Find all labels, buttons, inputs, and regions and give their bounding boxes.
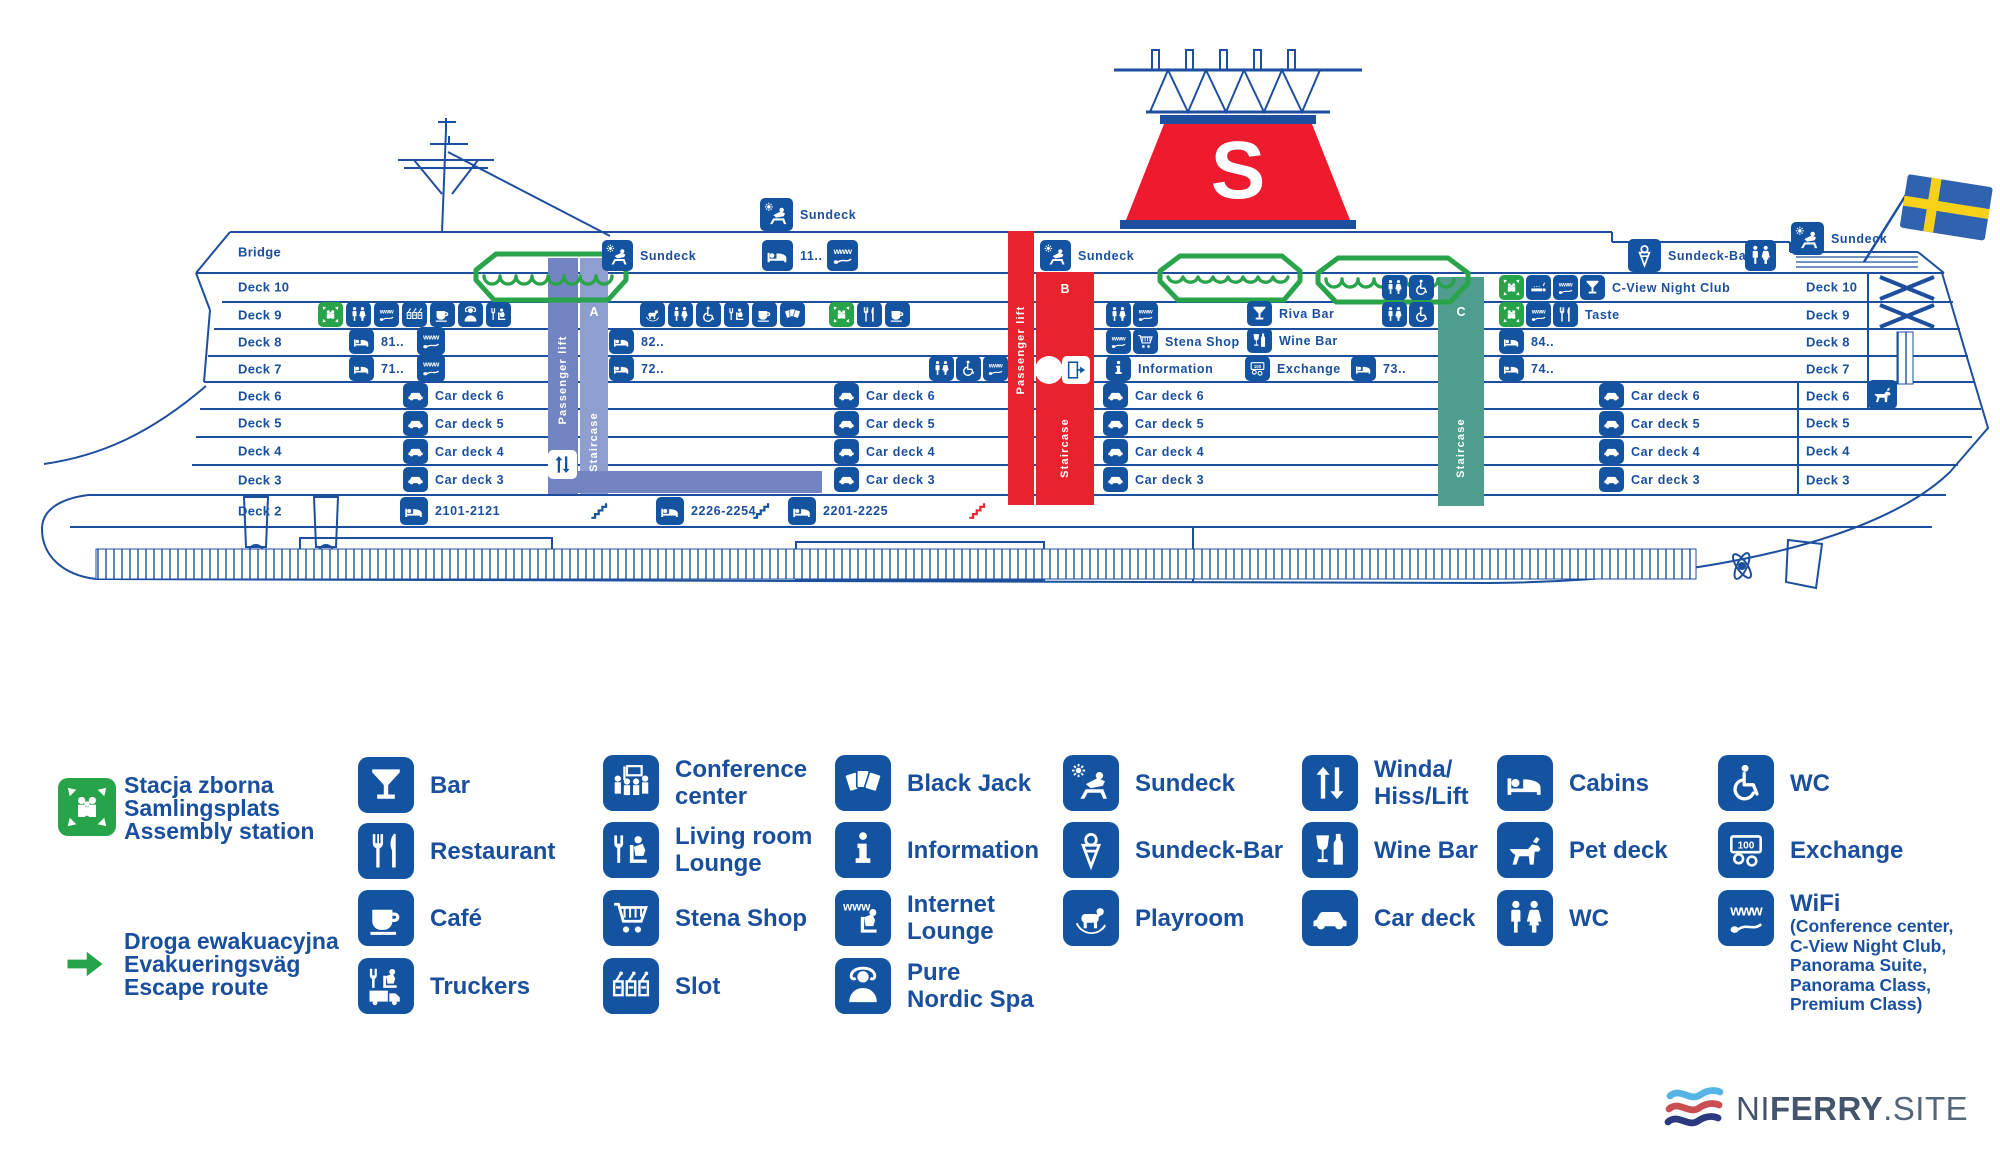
spa-icon [458, 302, 483, 327]
wc-acc-icon [956, 356, 981, 381]
slot-icon [402, 302, 427, 327]
cabins-icon [762, 240, 793, 271]
assembly-station-icon [58, 778, 116, 836]
playroom-icon [640, 302, 665, 327]
marker-label: Car deck 3 [1631, 473, 1700, 487]
legend-item-lift: Winda/Hiss/Lift [1302, 755, 1469, 811]
www-icon [1133, 302, 1158, 327]
legend-item-cabins: Cabins [1497, 755, 1649, 811]
legend-item-pet: Pet deck [1497, 822, 1668, 878]
pet-icon [1497, 822, 1553, 878]
marker-smoking [1526, 275, 1551, 300]
stairs-icon [586, 496, 614, 524]
bridge-front [196, 232, 230, 382]
marker-www [417, 327, 445, 355]
marker-label: Car deck 6 [1135, 389, 1204, 403]
funnel: S [1120, 115, 1356, 229]
legend-item-shop: Stena Shop [603, 890, 807, 946]
legend-label: WiFi(Conference center,C-View Night Club… [1790, 890, 1953, 1015]
funnel-letter: S [1211, 125, 1266, 216]
escape-route-label: Droga ewakuacyjnaEvakueringsvägEscape ro… [124, 930, 339, 999]
legend-item-restaurant: Restaurant [358, 823, 555, 879]
funnel-mast [1114, 50, 1362, 112]
marker-car: Car deck 6 [403, 383, 504, 408]
marker-cabins: 71.. [349, 356, 404, 381]
sundeck-icon [1063, 755, 1119, 811]
deck-label-right: Deck 6 [1806, 389, 1850, 404]
marker-sundeck: Sundeck [760, 198, 856, 231]
legend-item-slot: Slot [603, 958, 720, 1014]
deck-label-left: Deck 7 [238, 362, 282, 377]
marker-label: Sundeck-Bar [1668, 249, 1752, 263]
marker-www [983, 356, 1008, 381]
cafe-icon [358, 890, 414, 946]
band-staircase-b-letter: B [1060, 282, 1069, 296]
marker-wc [1745, 240, 1776, 271]
legend-label: Information [907, 837, 1039, 864]
marker-wc-acc [956, 356, 981, 381]
marker-cabins: 81.. [349, 329, 404, 354]
info-icon [835, 822, 891, 878]
legend-label: Café [430, 905, 482, 932]
niferry-site-logo: NIFERRY.SITE [1664, 1084, 1968, 1134]
legend-item-playroom: Playroom [1063, 890, 1244, 946]
legend-label: Black Jack [907, 770, 1031, 797]
exchange-icon [1245, 356, 1270, 381]
legend-label: Wine Bar [1374, 837, 1478, 864]
marker-cabins: 2201-2225 [788, 497, 888, 525]
wifi-icon [1718, 890, 1774, 946]
marker-www [1526, 302, 1551, 327]
legend-label: WC [1790, 770, 1830, 797]
legend-label: Winda/Hiss/Lift [1374, 756, 1469, 810]
marker-assembly [1499, 302, 1524, 327]
legend-label: Sundeck [1135, 770, 1235, 797]
restaurant-icon [857, 302, 882, 327]
wc-icon [929, 356, 954, 381]
marker-label: Wine Bar [1279, 334, 1338, 348]
wc-icon [346, 302, 371, 327]
deck-label-right: Deck 3 [1806, 473, 1850, 488]
marker-label: Car deck 3 [866, 473, 935, 487]
legend-item-wc-acc: WC [1718, 755, 1830, 811]
radar-mast [398, 118, 610, 236]
car-icon [1599, 439, 1624, 464]
wc-acc-icon [1718, 755, 1774, 811]
ferry-deck-plan: www 100 www ww [0, 0, 2000, 1154]
marker-label: Sundeck [1078, 249, 1134, 263]
lounge-icon [486, 302, 511, 327]
band-staircase-c-text: Staircase [1455, 418, 1467, 478]
deck-label-right: Deck 7 [1806, 362, 1850, 377]
legend-item-blackjack: Black Jack [835, 755, 1031, 811]
cabins-icon [349, 356, 374, 381]
marker-label: 84.. [1531, 335, 1554, 349]
legend-label: Exchange [1790, 837, 1903, 864]
www-icon [1526, 302, 1551, 327]
marker-wc [1382, 275, 1407, 300]
assembly-station-icon [58, 778, 116, 836]
legend-item-spa: PureNordic Spa [835, 958, 1034, 1014]
band-staircase-b-lift-text: Passenger lift [1015, 306, 1027, 395]
pet-icon [1868, 380, 1897, 409]
car-icon [403, 467, 428, 492]
deck-label-right: Deck 8 [1806, 335, 1850, 350]
assembly-icon [318, 302, 343, 327]
marker-label: 2226-2254 [691, 504, 756, 518]
car-icon [403, 439, 428, 464]
www-icon [983, 356, 1008, 381]
car-icon [834, 411, 859, 436]
www-icon [417, 354, 445, 382]
conference-icon [603, 755, 659, 811]
legend-label: InternetLounge [907, 891, 995, 945]
marker-info: Information [1106, 356, 1213, 381]
marker-label: 71.. [381, 362, 404, 376]
car-icon [1599, 467, 1624, 492]
legend-item-sundeck: Sundeck [1063, 755, 1235, 811]
sundeck-icon [1040, 240, 1071, 271]
legend-label: Living roomLounge [675, 823, 812, 877]
deck-label-left: Deck 3 [238, 473, 282, 488]
marker-stairs [586, 496, 614, 524]
wc-icon [1382, 275, 1407, 300]
lift-icon [1302, 755, 1358, 811]
band-staircase-a-lift-text: Passenger lift [557, 336, 569, 425]
legend-item-cafe: Café [358, 890, 482, 946]
marker-label: Car deck 5 [1135, 417, 1204, 431]
dot-icon [1035, 356, 1063, 384]
marker-wc-acc [1409, 302, 1434, 327]
legend-label: Cabins [1569, 770, 1649, 797]
marker-car: Car deck 3 [403, 467, 504, 492]
marker-wc [1382, 302, 1407, 327]
bar-icon [358, 757, 414, 813]
marker-car: Car deck 4 [1103, 439, 1204, 464]
marker-bar: Riva Bar [1247, 301, 1335, 326]
legend-label: Slot [675, 973, 720, 1000]
band-staircase-c-letter: C [1456, 305, 1465, 319]
shop-icon [1133, 329, 1158, 354]
marker-cabins: 72.. [609, 356, 664, 381]
cabins-icon [609, 356, 634, 381]
marker-car: Car deck 6 [1103, 383, 1204, 408]
marker-wc-acc [696, 302, 721, 327]
car-icon [1599, 383, 1624, 408]
marker-stairs [964, 496, 992, 524]
sundeck-icon [760, 198, 793, 231]
marker-label: Car deck 5 [435, 417, 504, 431]
www-icon [374, 302, 399, 327]
marker-cabins: 11.. [762, 240, 823, 271]
car-icon [403, 411, 428, 436]
wc-icon [1106, 302, 1131, 327]
marker-label: Exchange [1277, 362, 1341, 376]
wc-acc-icon [696, 302, 721, 327]
marker-wc [346, 302, 371, 327]
marker-label: 72.. [641, 362, 664, 376]
marker-wine: Wine Bar [1247, 328, 1338, 353]
marker-blackjack [780, 302, 805, 327]
bow-rib-strip [1897, 332, 1913, 384]
deck-label-left: Bridge [238, 245, 281, 260]
playroom-icon [1063, 890, 1119, 946]
marker-cafe [752, 302, 777, 327]
marker-dot [1035, 356, 1063, 384]
marker-label: Car deck 6 [1631, 389, 1700, 403]
marker-sundeck: Sundeck [1040, 240, 1134, 271]
cabins-icon [1499, 356, 1524, 381]
car-icon [1599, 411, 1624, 436]
sundeck-icon [1791, 222, 1824, 255]
marker-cabins: 84.. [1499, 329, 1554, 354]
marker-label: Sundeck [800, 208, 856, 222]
bar-icon [1247, 301, 1272, 326]
legend-item-sundeck-bar: Sundeck-Bar [1063, 822, 1283, 878]
marker-restaurant [857, 302, 882, 327]
legend-item-info: Information [835, 822, 1039, 878]
marker-label: 73.. [1383, 362, 1406, 376]
lift-icon [548, 450, 577, 479]
restaurant-icon [358, 823, 414, 879]
legend-label: Bar [430, 772, 470, 799]
car-icon [834, 467, 859, 492]
marker-label: Car deck 5 [1631, 417, 1700, 431]
deck-label-left: Deck 4 [238, 444, 282, 459]
marker-label: 2101-2121 [435, 504, 500, 518]
car-icon [1103, 467, 1128, 492]
blackjack-icon [780, 302, 805, 327]
marker-www [1106, 329, 1131, 354]
legend-label: PureNordic Spa [907, 959, 1034, 1013]
car-icon [1103, 439, 1128, 464]
marker-cabins: 74.. [1499, 356, 1554, 381]
marker-label: Car deck 4 [435, 445, 504, 459]
marker-label: 11.. [800, 249, 823, 263]
legend-label: Restaurant [430, 838, 555, 865]
deck-label-right: Deck 9 [1806, 308, 1850, 323]
legend-label: Stena Shop [675, 905, 807, 932]
www-icon [417, 327, 445, 355]
marker-restaurant: Taste [1553, 302, 1620, 327]
marker-spa [458, 302, 483, 327]
marker-label: Sundeck [640, 249, 696, 263]
smoking-icon [1526, 275, 1551, 300]
marker-bar: C-View Night Club [1580, 275, 1730, 300]
sundeck-bar-icon [1628, 239, 1661, 272]
marker-www [417, 354, 445, 382]
car-icon [1103, 383, 1128, 408]
deck-label-right: Deck 10 [1806, 280, 1857, 295]
cafe-icon [430, 302, 455, 327]
cafe-icon [885, 302, 910, 327]
cafe-icon [752, 302, 777, 327]
wc-icon [1745, 240, 1776, 271]
deck-label-left: Deck 6 [238, 389, 282, 404]
marker-cabins: 82.. [609, 329, 664, 354]
escape-route-arrow-icon [64, 950, 106, 983]
assembly-icon [1499, 302, 1524, 327]
marker-stairs [748, 496, 776, 524]
marker-label: Car deck 4 [1631, 445, 1700, 459]
blackjack-icon [835, 755, 891, 811]
deck-label-right: Deck 5 [1806, 416, 1850, 431]
marker-label: Taste [1585, 308, 1620, 322]
slot-icon [603, 958, 659, 1014]
assembly-station-label: Stacja zbornaSamlingsplatsAssembly stati… [124, 774, 314, 843]
marker-assembly [829, 302, 854, 327]
cabins-icon [1351, 356, 1376, 381]
marker-www [1133, 302, 1158, 327]
marker-wc-acc [1409, 275, 1434, 300]
legend-item-bar: Bar [358, 757, 470, 813]
spa-icon [835, 958, 891, 1014]
door-icon [1062, 356, 1090, 384]
marker-label: Riva Bar [1279, 307, 1335, 321]
cabins-icon [656, 497, 684, 525]
marker-car: Car deck 5 [1103, 411, 1204, 436]
stairs-icon [964, 496, 992, 524]
marker-wc [1106, 302, 1131, 327]
deck-label-left: Deck 10 [238, 280, 289, 295]
cabins-icon [400, 497, 428, 525]
lounge-icon [724, 302, 749, 327]
marker-lounge [486, 302, 511, 327]
marker-cafe [885, 302, 910, 327]
assembly-icon [829, 302, 854, 327]
marker-cabins: 2226-2254 [656, 497, 756, 525]
legend-label: Playroom [1135, 905, 1244, 932]
marker-car: Car deck 4 [403, 439, 504, 464]
stern-louver [1796, 257, 1918, 267]
hull-rib-band [96, 549, 1696, 579]
marker-cafe [430, 302, 455, 327]
marker-label: C-View Night Club [1612, 281, 1730, 295]
truckers-icon [358, 958, 414, 1014]
wine-icon [1247, 328, 1272, 353]
bar-icon [1580, 275, 1605, 300]
marker-shop: Stena Shop [1133, 329, 1240, 354]
lounge-icon [603, 822, 659, 878]
legend-item-lounge: Living roomLounge [603, 822, 812, 878]
legend-item-wine: Wine Bar [1302, 822, 1478, 878]
legend-item-truckers: Truckers [358, 958, 530, 1014]
propeller-icon [1730, 540, 1822, 588]
car-icon [834, 439, 859, 464]
marker-car: Car deck 4 [1599, 439, 1700, 464]
marker-label: Car deck 3 [435, 473, 504, 487]
legend-item-car: Car deck [1302, 890, 1475, 946]
legend-label: Pet deck [1569, 837, 1668, 864]
legend-label: Conferencecenter [675, 756, 807, 810]
legend-item-exchange: Exchange [1718, 822, 1903, 878]
legend-item-wifi: WiFi(Conference center,C-View Night Club… [1718, 890, 1953, 1015]
sundeck-icon [602, 240, 633, 271]
marker-label: 82.. [641, 335, 664, 349]
marker-wc [668, 302, 693, 327]
wc-acc-icon [1409, 302, 1434, 327]
marker-sundeck: Sundeck [1791, 222, 1887, 255]
marker-car: Car deck 3 [834, 467, 935, 492]
legend-label: Truckers [430, 973, 530, 1000]
marker-lounge [724, 302, 749, 327]
stairs-icon [748, 496, 776, 524]
band-staircase-a-arm [578, 471, 822, 493]
marker-door [1062, 356, 1090, 384]
marker-www [374, 302, 399, 327]
legend-item-wc: WC [1497, 890, 1609, 946]
car-icon [1302, 890, 1358, 946]
marker-car: Car deck 6 [834, 383, 935, 408]
deck-label-right: Deck 4 [1806, 444, 1850, 459]
legend-item-conference: Conferencecenter [603, 755, 807, 811]
marker-sundeck: Sundeck [602, 240, 696, 271]
deck-label-left: Deck 5 [238, 416, 282, 431]
legend-label: Car deck [1374, 905, 1475, 932]
marker-car: Car deck 6 [1599, 383, 1700, 408]
marker-playroom [640, 302, 665, 327]
marker-car: Car deck 5 [403, 411, 504, 436]
marker-label: Information [1138, 362, 1213, 376]
marker-car: Car deck 3 [1599, 467, 1700, 492]
cabins-icon [788, 497, 816, 525]
assembly-icon [1499, 275, 1524, 300]
cabins-icon [1499, 329, 1524, 354]
marker-exchange: Exchange [1245, 356, 1341, 381]
marker-pet [1868, 380, 1897, 409]
restaurant-icon [1553, 302, 1578, 327]
marker-label: Car deck 3 [1135, 473, 1204, 487]
band-staircase-a-letter: A [589, 305, 598, 319]
marker-lift [548, 450, 577, 479]
marker-car: Car deck 4 [834, 439, 935, 464]
marker-label: 81.. [381, 335, 404, 349]
internet-icon [835, 890, 891, 946]
sundeck-bar-icon [1063, 822, 1119, 878]
wine-icon [1302, 822, 1358, 878]
marker-assembly [318, 302, 343, 327]
marker-www [1553, 275, 1578, 300]
marker-label: Car deck 4 [1135, 445, 1204, 459]
marker-car: Car deck 5 [1599, 411, 1700, 436]
www-icon [1553, 275, 1578, 300]
band-staircase-b-text: Staircase [1059, 418, 1071, 478]
wc-icon [1382, 302, 1407, 327]
marker-label: 2201-2225 [823, 504, 888, 518]
marker-sundeck-bar: Sundeck-Bar [1628, 239, 1752, 272]
deck-label-left: Deck 2 [238, 504, 282, 519]
marker-label: 74.. [1531, 362, 1554, 376]
marker-car: Car deck 5 [834, 411, 935, 436]
shop-icon [603, 890, 659, 946]
car-icon [1103, 411, 1128, 436]
band-staircase-a-text: Staircase [588, 412, 600, 472]
ship-profile: S [0, 0, 2000, 700]
niferry-site-wordmark: NIFERRY.SITE [1736, 1090, 1968, 1128]
cabins-icon [349, 329, 374, 354]
marker-label: Car deck 6 [866, 389, 935, 403]
www-icon [827, 240, 858, 271]
marker-car: Car deck 3 [1103, 467, 1204, 492]
marker-wc [929, 356, 954, 381]
wc-icon [668, 302, 693, 327]
wc-acc-icon [1409, 275, 1434, 300]
car-icon [403, 383, 428, 408]
wc-icon [1497, 890, 1553, 946]
car-icon [834, 383, 859, 408]
marker-cabins: 2101-2121 [400, 497, 500, 525]
info-icon [1106, 356, 1131, 381]
